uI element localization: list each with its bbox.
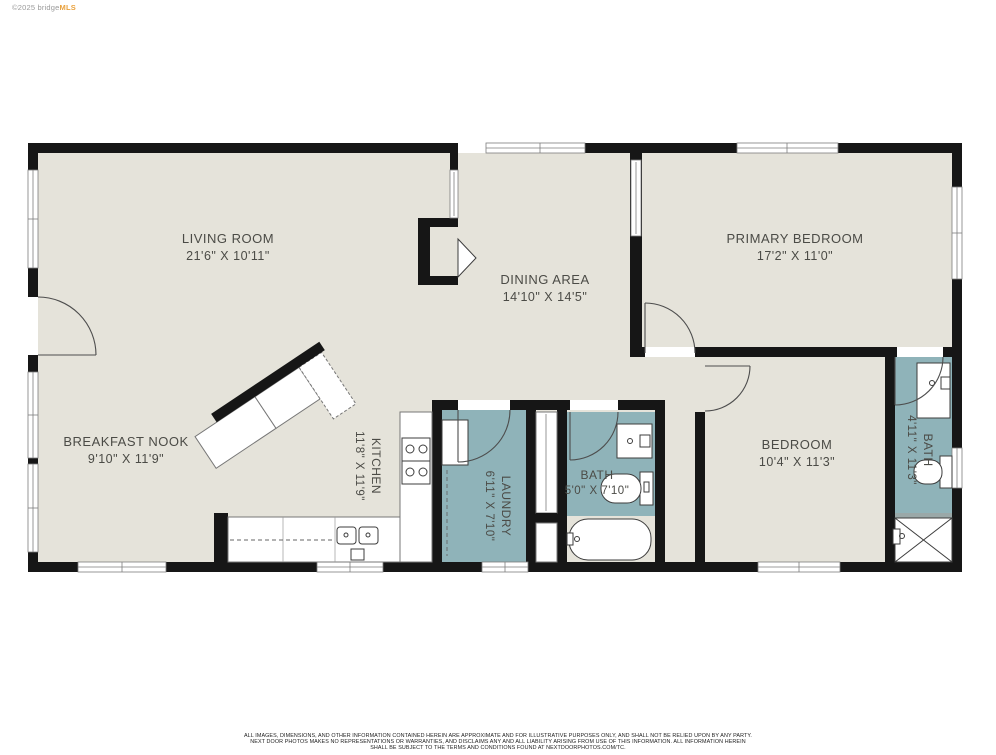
window-bath2-right — [952, 448, 962, 488]
floor-plan: LIVING ROOM 21'6" X 10'11" DINING AREA 1… — [0, 0, 996, 755]
window-bedroom-bottom — [758, 562, 840, 572]
wall-nook-stub — [214, 513, 228, 562]
window-living-left — [28, 170, 38, 268]
linen-closet-lower — [536, 523, 557, 562]
linen-closet-divider — [536, 513, 557, 523]
wall-entry-closet-bottom — [418, 276, 458, 285]
bath-dims: 5'0" X 7'10" — [565, 485, 630, 497]
window-kitchen-bottom — [317, 562, 383, 572]
bath-label: BATH — [580, 468, 613, 482]
primary-bedroom-dims: 17'2" X 11'0" — [757, 249, 833, 263]
faucet-handle — [941, 377, 950, 389]
wall-bedroom-left — [695, 412, 705, 562]
primary-bedroom-label: PRIMARY BEDROOM — [726, 231, 863, 246]
laundry-dims: 6'11" X 7'10" — [483, 471, 495, 542]
slider-entry-closet — [450, 170, 458, 218]
faucet — [351, 549, 364, 560]
window-laundry-bottom — [482, 562, 528, 572]
wall-laundry-closet — [526, 410, 536, 562]
stove — [402, 438, 430, 484]
living-room-label: LIVING ROOM — [182, 231, 274, 246]
window-nook-bottom — [78, 562, 166, 572]
bath-door-opening — [570, 400, 618, 410]
faucet-handle — [640, 435, 650, 447]
bath2-dims: 4'11" X 11'3" — [905, 415, 917, 485]
washer — [442, 420, 468, 465]
breakfast-nook-dims: 9'10" X 11'9" — [88, 452, 164, 466]
bathtub — [567, 519, 651, 560]
bath2-door-opening — [897, 347, 943, 357]
living-room-dims: 21'6" X 10'11" — [186, 249, 270, 263]
entry-door-opening — [458, 143, 486, 153]
linen-closet — [536, 412, 557, 562]
window-primary-right — [952, 187, 962, 279]
window-primary-top — [737, 143, 838, 153]
wall-laundry-left — [432, 400, 442, 562]
wall-entry-closet-left — [418, 218, 430, 285]
kitchen-dims: 11'8" X 11'9" — [353, 431, 365, 501]
laundry-label: LAUNDRY — [499, 476, 513, 537]
laundry-door-opening — [458, 400, 510, 410]
bath2-label: BATH — [921, 433, 935, 466]
kitchen-label: KITCHEN — [369, 438, 383, 494]
bedroom-dims: 10'4" X 11'3" — [759, 455, 835, 469]
window-nook-left-2 — [28, 464, 38, 552]
vanity-sink — [917, 363, 950, 418]
living-door-opening — [28, 297, 38, 355]
primary-door-opening — [645, 347, 695, 357]
bedroom-label: BEDROOM — [762, 437, 833, 452]
dining-area-dims: 14'10" X 14'5" — [503, 290, 588, 304]
shower-valve — [893, 529, 900, 544]
slider-dining-wall — [631, 160, 641, 236]
breakfast-nook-label: BREAKFAST NOOK — [63, 434, 188, 449]
linen-closet-door — [536, 412, 557, 513]
disclaimer: ALL IMAGES, DIMENSIONS, AND OTHER INFORM… — [0, 733, 996, 751]
shower — [893, 518, 952, 562]
bath2-shower-curb — [895, 513, 952, 518]
window-nook-left-1 — [28, 372, 38, 458]
wall-bath-right — [655, 400, 665, 562]
disclaimer-line-3: SHALL BE SUBJECT TO THE TERMS AND CONDIT… — [0, 745, 996, 751]
kitchen-counter-east — [400, 412, 432, 562]
dining-area-label: DINING AREA — [500, 272, 589, 287]
window-dining-top — [486, 143, 585, 153]
